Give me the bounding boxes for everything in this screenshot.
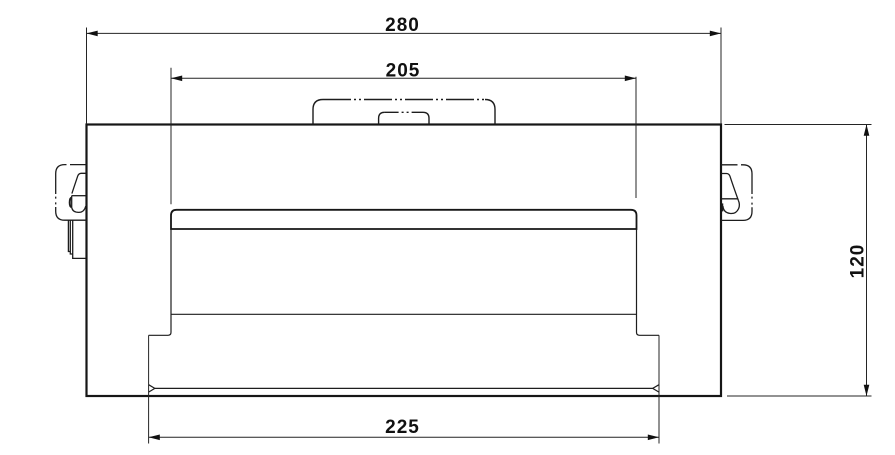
svg-text:280: 280 [385, 15, 420, 36]
svg-text:120: 120 [848, 244, 869, 279]
svg-text:225: 225 [385, 417, 420, 438]
svg-text:205: 205 [386, 60, 421, 81]
